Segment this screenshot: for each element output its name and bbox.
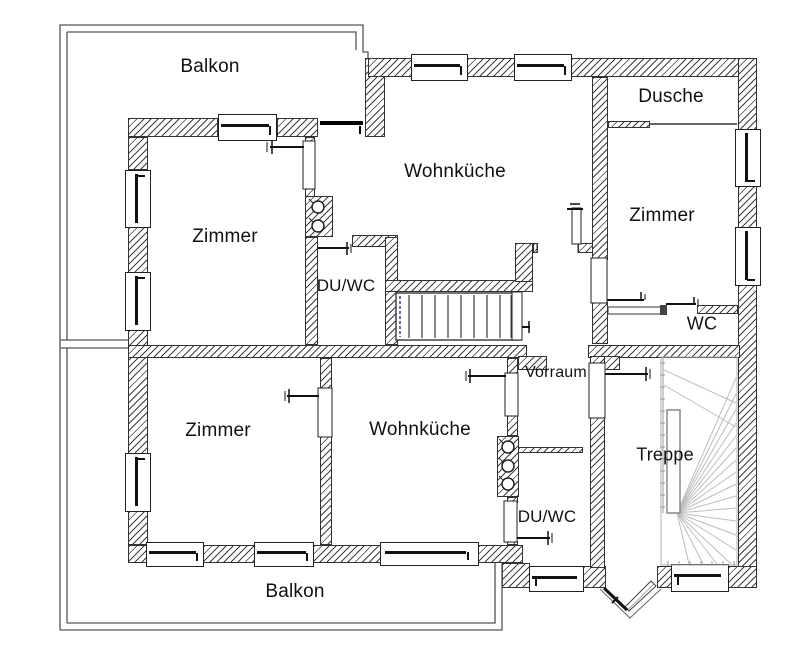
wall-segment [128,545,147,563]
wall-segment [592,77,608,260]
wall-segment [533,243,538,253]
wall-segment [590,356,605,365]
window [380,542,479,566]
window [514,54,572,81]
window [254,542,314,567]
door-wohnkueche-lower [466,369,518,416]
shaft-lower [497,436,519,497]
window [735,129,761,187]
wall-segment [507,358,518,375]
wall-segment [571,58,757,77]
wall-segment [728,566,757,588]
wall-segment [507,415,518,436]
door-duwc-upper [318,242,351,255]
wall-segment [128,511,148,545]
wall-segment [320,358,332,390]
wall-segment [603,356,620,370]
wc-partition [608,307,662,314]
window [529,566,584,592]
room-label-zimmer-right: Zimmer [629,205,695,227]
wc-door-jamb [660,305,667,315]
wall-segment [128,118,218,137]
room-label-zimmer-upper-left: Zimmer [192,226,258,248]
window [671,564,729,592]
wall-segment [128,345,527,358]
wall-segment [478,545,523,563]
room-label-zimmer-lower-left: Zimmer [185,420,251,442]
room-label-wohnkueche-upper: Wohnküche [404,161,506,183]
wall-segment [592,302,608,344]
wall-segment [608,121,650,128]
wall-segment [738,186,757,228]
wall-segment [507,497,518,503]
window [125,453,151,512]
wall-segment [518,447,583,453]
door-treppe-hall [589,363,650,418]
window [735,227,761,286]
straight-stairs [396,293,521,340]
room-label-duwc-upper: DU/WC [317,276,376,296]
balcony-door [320,123,363,134]
door-stairs-top [512,292,530,340]
room-label-vorraum: Vorraum [525,364,587,382]
wall-segment [128,227,148,273]
door-zimmer-lower-left [285,388,332,437]
window [125,272,151,331]
wall-segment [305,137,315,143]
wall-segment [277,118,318,137]
wall-segment [320,436,332,545]
door-zimmer-right [591,258,645,303]
entrance-bay [600,581,661,618]
door-wc [666,297,698,305]
entrance-door-leaf [604,588,627,610]
window [218,114,277,141]
wall-segment [385,280,533,292]
wall-segment [515,243,533,282]
window [146,542,204,567]
room-label-balkon-top: Balkon [180,56,239,78]
door-wohnkueche-upper [537,204,583,253]
room-label-wohnkueche-lower: Wohnküche [369,419,471,441]
door-zimmer-upper-left [267,140,315,189]
wall-segment [128,137,148,170]
room-label-dusche: Dusche [638,86,704,108]
wall-segment [590,417,605,568]
window [411,54,468,81]
wall-segment [502,563,530,588]
wall-segment [657,566,672,588]
wall-segment [203,545,255,563]
room-label-treppe: Treppe [636,445,694,466]
wall-segment [313,545,381,563]
shaft-upper [305,196,333,237]
wall-segment [368,58,412,77]
wall-segment [583,566,606,588]
room-label-balkon-bottom: Balkon [265,581,324,603]
wall-segment [738,58,757,130]
wall-segment [467,58,515,77]
wall-segment [738,285,757,588]
wall-segment [507,541,518,545]
room-label-duwc-lower: DU/WC [518,507,577,527]
window [125,170,151,228]
room-label-wc: WC [687,314,717,335]
floorplan: Balkon Zimmer Wohnküche Dusche Zimmer DU… [0,0,800,665]
